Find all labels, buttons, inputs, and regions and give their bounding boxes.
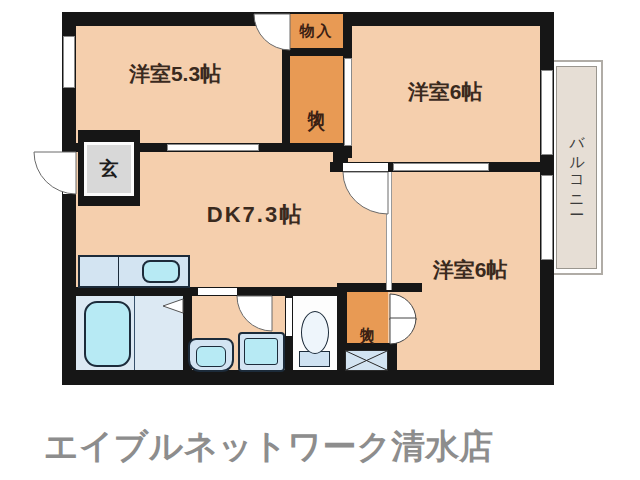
kitchen-sink (142, 260, 180, 283)
store-name: エイブルネットワーク清水店 (44, 424, 493, 470)
washing-machine-pan-inner (244, 338, 278, 365)
bifold-door-upper (390, 294, 416, 320)
bath-divider (134, 296, 135, 370)
washroom-door-swing-arc (237, 296, 272, 331)
kitchen-counter-divider (118, 256, 119, 287)
bifold-door-lower (390, 318, 416, 344)
dk-label: DK7.3帖 (160, 200, 350, 230)
hatch-x-mark (346, 351, 387, 370)
bathtub (84, 301, 131, 367)
hatched-box (345, 350, 388, 371)
room6top-label: 洋室6帖 (355, 78, 535, 106)
bath-fold-door-mark (163, 299, 183, 313)
closet-top-door-arc (254, 14, 290, 50)
room6bottom-label: 洋室6帖 (395, 256, 545, 284)
washbasin-bowl (196, 346, 226, 367)
floor-plan: バルコニー 物入 物入 物入 玄 (0, 0, 640, 480)
toilet-bowl (301, 311, 329, 354)
entry-door-swing-arc (34, 152, 76, 194)
room53-label: 洋室5.3帖 (90, 60, 260, 88)
